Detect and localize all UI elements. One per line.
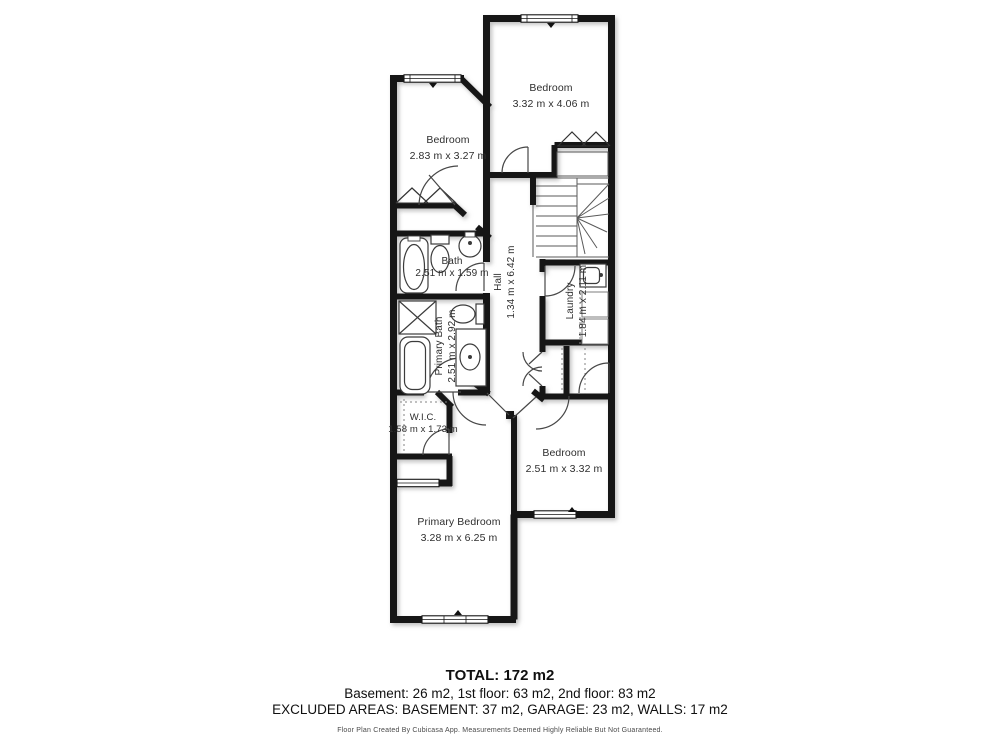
room-dims: 3.32 m x 4.06 m [513, 96, 590, 112]
floor-plan-drawing [0, 0, 1000, 750]
room-name: Laundry [564, 265, 577, 337]
room-dims: 1.34 m x 6.42 m [505, 245, 518, 318]
excluded-areas-text: EXCLUDED AREAS: BASEMENT: 37 m2, GARAGE:… [0, 702, 1000, 718]
room-name: Bedroom [526, 445, 603, 461]
room-label-hall: Hall 1.34 m x 6.42 m [492, 245, 518, 318]
room-name: Primary Bedroom [417, 514, 500, 530]
disclaimer-text: Floor Plan Created By Cubicasa App. Meas… [0, 727, 1000, 734]
total-area-text: TOTAL: 172 m2 [0, 666, 1000, 686]
room-dims: 1.84 m x 2.11 m [577, 265, 590, 337]
room-dims: 2.83 m x 3.27 m [410, 148, 487, 164]
area-summary: TOTAL: 172 m2 Basement: 26 m2, 1st floor… [0, 666, 1000, 734]
room-name: Bedroom [513, 80, 590, 96]
room-label-bedroom-top-left: Bedroom 2.83 m x 3.27 m [410, 132, 487, 164]
floor-areas-text: Basement: 26 m2, 1st floor: 63 m2, 2nd f… [0, 686, 1000, 702]
room-label-bath: Bath 2.51 m x 1.59 m [415, 256, 488, 280]
room-dims: 1.58 m x 1.73 m [388, 424, 458, 436]
bathtub-icon [400, 337, 430, 394]
shower-icon [399, 301, 436, 334]
vanity-sink-icon [456, 329, 486, 386]
room-name: W.I.C. [388, 412, 458, 424]
room-label-wic: W.I.C. 1.58 m x 1.73 m [388, 412, 458, 436]
staircase [533, 178, 609, 257]
room-name: Hall [492, 245, 505, 318]
room-dims: 3.28 m x 6.25 m [417, 530, 500, 546]
room-label-primary-bedroom: Primary Bedroom 3.28 m x 6.25 m [417, 514, 500, 546]
room-dims: 2.51 m x 2.92 m [446, 309, 459, 382]
floor-plan-page: { "plan": { "rooms": [ {"name": "Bedroom… [0, 0, 1000, 750]
room-label-primary-bath: Primary Bath 2.51 m x 2.92 m [433, 309, 459, 382]
room-name: Bath [415, 256, 488, 268]
room-dims: 2.51 m x 1.59 m [415, 268, 488, 280]
room-label-laundry: Laundry 1.84 m x 2.11 m [564, 265, 590, 337]
room-name: Bedroom [410, 132, 487, 148]
room-label-bedroom-mid-right: Bedroom 2.51 m x 3.32 m [526, 445, 603, 477]
room-dims: 2.51 m x 3.32 m [526, 461, 603, 477]
room-label-bedroom-top-right: Bedroom 3.32 m x 4.06 m [513, 80, 590, 112]
room-name: Primary Bath [433, 309, 446, 382]
